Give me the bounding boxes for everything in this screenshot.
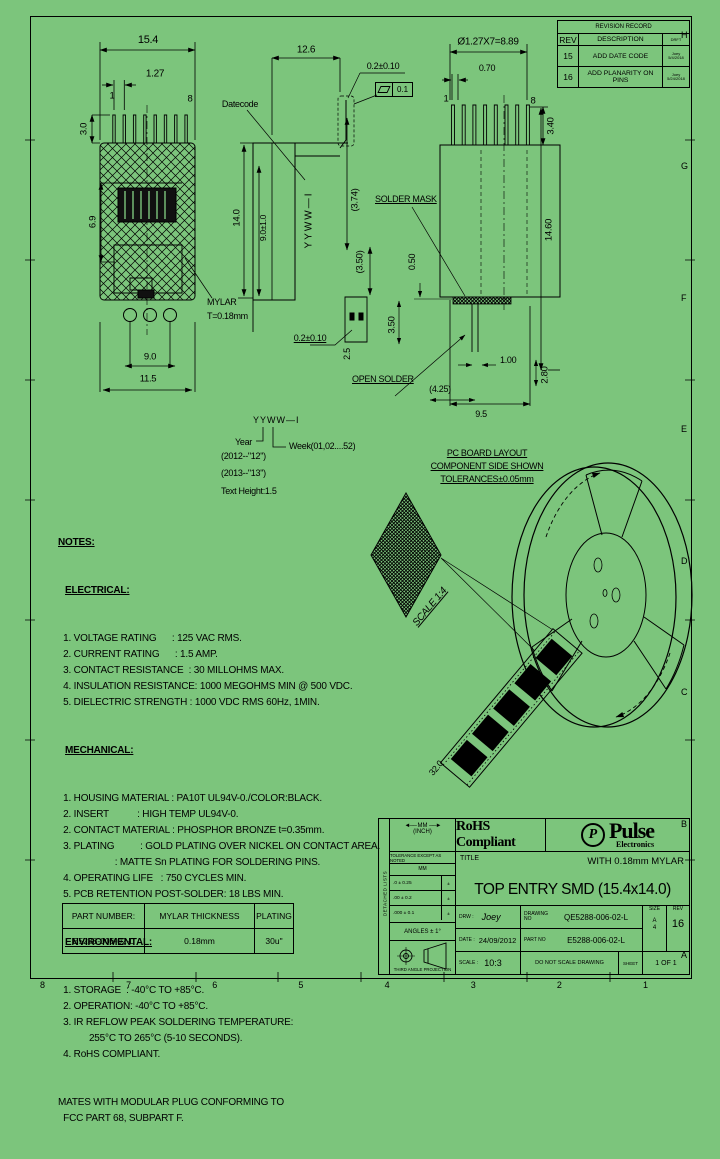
zone-letter: E [681, 424, 688, 434]
part-number-header: PART NUMBER: [63, 904, 144, 928]
dim-pin-height: 3.0 [79, 123, 90, 135]
revision-table: REVISION RECORD REV DESCRIPTION DRFT 15 … [557, 20, 690, 88]
zone-number: 1 [643, 980, 648, 990]
dim-050: 0.50 [407, 254, 417, 270]
brand-box: P Pulse Electronics [545, 818, 690, 852]
zone-letter: C [681, 687, 688, 697]
rev-author: Joey 5/4/2018 [662, 46, 689, 66]
rev-value: 16 [667, 918, 689, 930]
dim-9010: 9.0±1.0 [258, 215, 268, 241]
title-block: DETACHED LISTS ◄── MM ──► (INCH) TOLERAN… [378, 818, 690, 975]
drawing-number-cell: DRAWING NO QE5288-006-02-L [520, 905, 643, 929]
size-cell: SIZE A 4 [642, 905, 667, 952]
dim-hole-span: 9.0 [144, 352, 156, 363]
mylar-thickness-callout: T=0.18mm [207, 311, 248, 321]
drft-col-header: DRFT [662, 34, 689, 45]
rev-description: ADD DATE CODE [578, 46, 662, 66]
mechanical-notes: 1. HOUSING MATERIAL : PA10T UL94V-0./COL… [58, 791, 380, 903]
datecode-week-label: Week(01,02....52) [289, 441, 355, 451]
solder-mask-callout: SOLDER MASK [375, 194, 437, 204]
dim-depth: 12.6 [297, 45, 315, 56]
size-value: A 4 [643, 918, 666, 932]
zone-number: 2 [557, 980, 562, 990]
zone-number: 3 [471, 980, 476, 990]
flatness-value: 0.1 [393, 85, 412, 94]
date-label: DATE : [456, 937, 475, 943]
drawing-subtitle: WITH 0.18mm MYLAR [587, 856, 684, 867]
tolerance-table: MM .0 ± 0.25± .00 ± 0.2± .000 ± 0.1± [389, 863, 456, 923]
drawing-sheet: 87654321 HGFEDCBA REVISION RECORD REV DE… [0, 0, 720, 1012]
datecode-example-2: (2013--"13") [221, 468, 266, 478]
title-area: TITLE WITH 0.18mm MYLAR TOP ENTRY SMD (1… [455, 851, 690, 906]
dim-374: (3.74) [350, 188, 361, 211]
mechanical-title: MECHANICAL: [58, 743, 380, 759]
angles-tolerance: ANGLES ± 1° [389, 922, 456, 941]
part-number-cell: PART NO E5288-006-02-L [520, 928, 643, 952]
units-inch: (INCH) [390, 829, 455, 835]
zone-number: 4 [385, 980, 390, 990]
notes-block: NOTES: ELECTRICAL: 1. VOLTAGE RATING : 1… [58, 503, 380, 1159]
sheet-value: 1 OF 1 [642, 951, 690, 975]
part-number-label: PART NO [521, 938, 550, 943]
dim-1460: 14.60 [544, 219, 555, 241]
dim-pin-pitch: 1.27 [146, 69, 164, 80]
dim-pin-width: 0.70 [479, 63, 495, 73]
dim-body-width: 15.4 [138, 34, 158, 46]
dim-coplanarity-top: 0.2±0.10 [367, 61, 400, 71]
brand-text: Pulse Electronics [609, 822, 654, 849]
dim-overall-width: 11.5 [140, 374, 157, 385]
part-number-value: E5288-006-02-L [550, 936, 642, 945]
units-box: ◄── MM ──► (INCH) [389, 818, 456, 852]
part-row: E5288-006-02-L 0.18mm 30u" [63, 928, 293, 953]
flatness-icon [376, 83, 393, 96]
side-strip-label: DETACHED LISTS [383, 862, 388, 926]
plating-header: PLATING [254, 904, 293, 928]
dim-cavity-height: 6.9 [88, 216, 99, 228]
environmental-notes: 1. STORAGE : -40°C TO +85°C. 2. OPERATIO… [58, 983, 380, 1063]
scale-cell: SCALE : 10:3 [455, 951, 521, 975]
sheet-label: SHEET [618, 951, 643, 975]
pin1-label: 1 [110, 91, 115, 102]
rohs-badge: RoHS Compliant [455, 818, 546, 852]
part-number-value: E5288-006-02-L [63, 929, 144, 953]
revision-table-title: REVISION RECORD [558, 21, 689, 33]
zone-number: 8 [40, 980, 45, 990]
rev-number: 16 [558, 67, 578, 87]
dim-425: (4.25) [429, 384, 451, 394]
drawing-title: TOP ENTRY SMD (15.4x14.0) [456, 881, 689, 899]
pcb-note-line2: COMPONENT SIDE SHOWN [431, 461, 544, 471]
dim-350-rear: 3.50 [387, 316, 398, 333]
mylar-callout: MYLAR [207, 297, 237, 307]
tolerance-head: MM [390, 864, 455, 875]
part-number-table: PART NUMBER: MYLAR THICKNESS PLATING E52… [62, 903, 294, 954]
datecode-format: YYWW—I [253, 415, 300, 425]
tolerance-row: .00 ± 0.2± [390, 890, 455, 905]
scale-value: 10:3 [484, 958, 502, 968]
dim-pin-span: Ø1.27X7=8.89 [457, 37, 518, 48]
revision-row: 16 ADD PLANARITY ON PINS Joey 5/24/2018 [558, 66, 689, 87]
drawing-number-value: QE5288-006-02-L [550, 913, 642, 922]
tolerance-row: .000 ± 0.1± [390, 905, 455, 920]
zone-letter: G [681, 161, 688, 171]
rev-col-header: REV [558, 34, 578, 45]
dim-95: 9.5 [475, 409, 487, 419]
zone-letter: F [681, 293, 688, 303]
dim-340: 3.40 [546, 117, 557, 134]
pin8-label: 8 [188, 94, 193, 105]
scale-label: SCALE : [456, 960, 478, 966]
rev-cell: REV 16 [666, 905, 690, 952]
datecode-example-1: (2012--"12") [221, 451, 266, 461]
datecode-text-height: Text Height:1.5 [221, 486, 277, 496]
rev-number: 15 [558, 46, 578, 66]
revision-row: 15 ADD DATE CODE Joey 5/4/2018 [558, 45, 689, 66]
title-label: TITLE [460, 855, 479, 862]
drawing-number-label: DRAWING NO [521, 912, 550, 922]
zone-letter: D [681, 556, 688, 566]
desc-col-header: DESCRIPTION [578, 34, 662, 45]
projection-label: THIRD ANGLE PROJECTION [390, 967, 455, 972]
electrical-notes: 1. VOLTAGE RATING : 125 VAC RMS. 2. CURR… [58, 631, 380, 711]
flatness-frame: 0.1 [375, 82, 413, 97]
part-marking: YYWW—I [304, 192, 315, 249]
drawn-by-value: Joey [482, 912, 501, 922]
mylar-thickness-header: MYLAR THICKNESS [144, 904, 254, 928]
datecode-callout: Datecode [222, 99, 258, 109]
dim-280: 2.80 [540, 366, 551, 383]
rev-author: Joey 5/24/2018 [662, 67, 689, 87]
rev-description: ADD PLANARITY ON PINS [578, 67, 662, 87]
size-label: SIZE [643, 906, 666, 912]
brand-name: Pulse [609, 822, 654, 840]
date-cell: DATE : 24/09/2012 [455, 928, 521, 952]
mating-note: MATES WITH MODULAR PLUG CONFORMING TO FC… [58, 1095, 380, 1127]
pin1-label: 1 [444, 94, 449, 105]
dim-100: 1.00 [500, 355, 516, 365]
pcb-note-line1: PC BOARD LAYOUT [447, 448, 527, 458]
mylar-thickness-value: 0.18mm [144, 929, 254, 953]
dim-350-side: (3.50) [355, 250, 366, 273]
open-solder-callout: OPEN SOLDER [352, 374, 414, 384]
projection-box: THIRD ANGLE PROJECTION [389, 940, 456, 975]
tolerance-row: .0 ± 0.25± [390, 875, 455, 890]
pin8-label: 8 [531, 96, 536, 107]
dim-25: 2.5 [342, 348, 352, 360]
plating-value: 30u" [254, 929, 293, 953]
drawn-by-label: DRW : [456, 914, 474, 920]
dim-height: 14.0 [232, 209, 243, 226]
pulse-logo-icon: P [581, 823, 605, 847]
dim-coplanarity-bottom: 0.2±0.10 [294, 333, 327, 343]
date-value: 24/09/2012 [479, 936, 517, 945]
rev-label: REV [667, 906, 689, 912]
drawn-by-cell: DRW : Joey [455, 905, 521, 929]
electrical-title: ELECTRICAL: [58, 583, 380, 599]
pcb-note-line3: TOLERANCES±0.05mm [440, 474, 533, 484]
no-scale-note: DO NOT SCALE DRAWING [520, 951, 619, 975]
brand-subtitle: Electronics [609, 840, 654, 849]
notes-title: NOTES: [58, 535, 380, 551]
datecode-year-label: Year [235, 437, 252, 447]
